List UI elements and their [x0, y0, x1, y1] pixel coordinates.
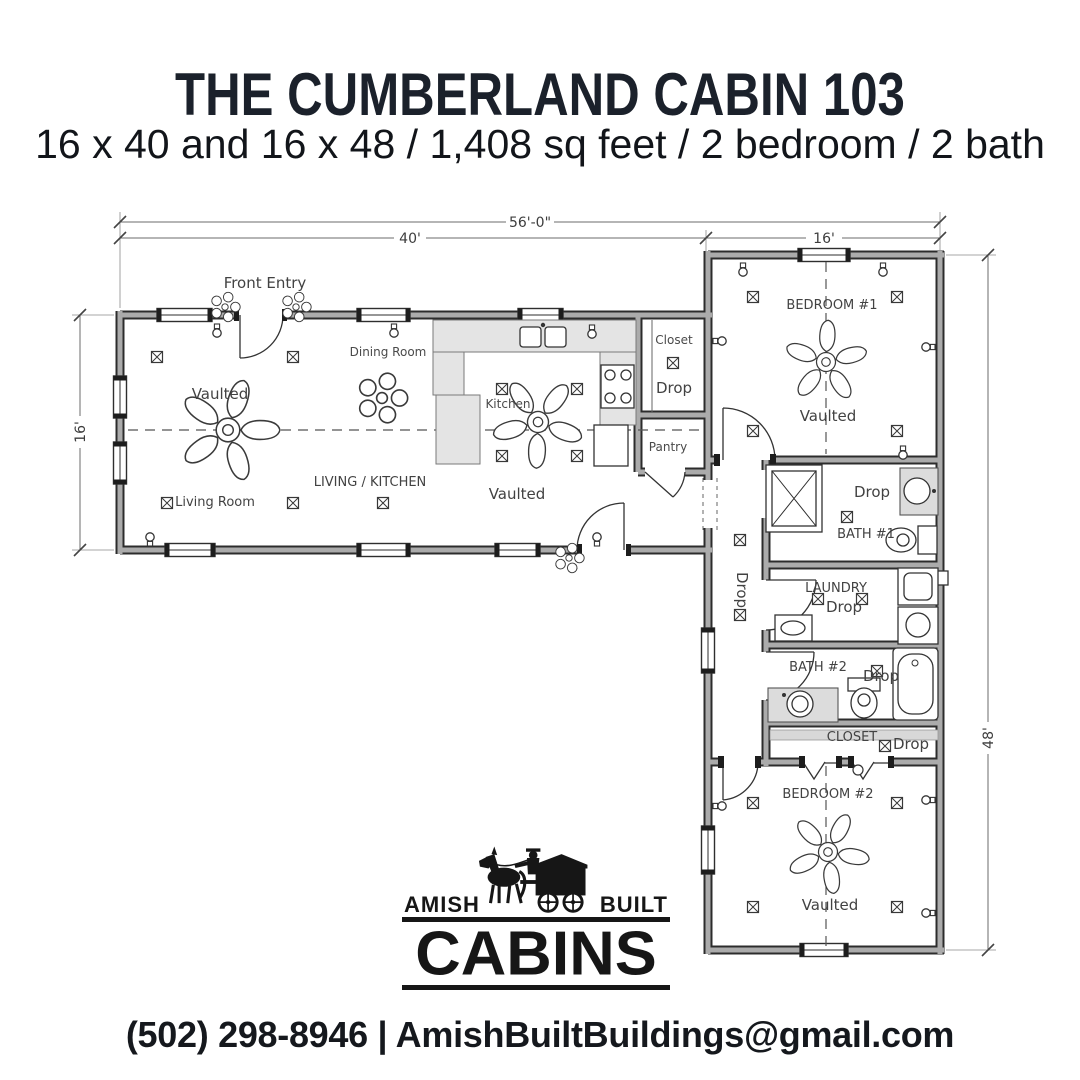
logo-word-cabins: CABINS — [402, 919, 670, 990]
dryer — [898, 607, 938, 644]
washer — [898, 568, 938, 605]
window — [157, 309, 212, 322]
label-drop-laundry: Drop — [826, 598, 862, 616]
label-laundry: LAUNDRY — [805, 581, 867, 596]
window — [800, 944, 848, 957]
label-bedroom1: BEDROOM #1 — [786, 298, 877, 313]
shower — [766, 465, 822, 532]
dishwasher — [594, 425, 628, 466]
bathtub — [893, 648, 938, 720]
window — [495, 544, 540, 557]
contact-info: (502) 298-8946 | AmishBuiltBuildings@gma… — [0, 1014, 1080, 1056]
window — [165, 544, 215, 557]
dim-right-wing-height: 48' — [981, 727, 997, 749]
bath2-vanity — [768, 688, 838, 722]
label-closet2: CLOSET — [827, 730, 878, 745]
label-drop-closet2: Drop — [893, 735, 929, 753]
window — [357, 544, 410, 557]
fan-bedroom2 — [783, 804, 876, 901]
fan-kitchen — [482, 364, 597, 482]
window — [702, 628, 715, 673]
label-pantry: Pantry — [649, 440, 687, 454]
logo-word-amish: AMISH — [404, 892, 480, 918]
logo-word-built: BUILT — [600, 892, 668, 918]
window — [357, 309, 410, 322]
label-living-room: Living Room — [175, 495, 255, 510]
label-vaulted-bedroom2: Vaulted — [802, 896, 859, 914]
company-logo: AMISH BUILT — [402, 846, 670, 994]
label-bath2: BATH #2 — [789, 660, 847, 675]
ceiling-fans — [180, 291, 877, 901]
label-front-entry: Front Entry — [224, 274, 307, 292]
closet-light — [853, 765, 863, 775]
flyer-page: THE CUMBERLAND CABIN 103 16 x 40 and 16 … — [0, 0, 1080, 1080]
dim-left-wing-depth: 16' — [73, 421, 89, 443]
label-bath1: BATH #1 — [837, 527, 895, 542]
laundry-tub — [775, 615, 812, 641]
label-vaulted-living: Vaulted — [192, 385, 249, 403]
label-living-kitchen: LIVING / KITCHEN — [314, 475, 427, 490]
bath1-vanity — [900, 468, 938, 515]
label-drop-closet1: Drop — [656, 379, 692, 397]
label-dining-room: Dining Room — [350, 345, 427, 359]
logo-rule-bottom — [402, 985, 670, 990]
label-closet1: Closet — [655, 333, 693, 347]
label-drop-hall: Drop — [733, 572, 751, 608]
label-vaulted-center: Vaulted — [489, 485, 546, 503]
light-dining — [356, 371, 407, 425]
fridge — [436, 395, 480, 464]
dim-right-wing-width: 16' — [813, 231, 835, 247]
label-vaulted-bedroom1: Vaulted — [800, 407, 857, 425]
front-entry-door — [240, 315, 283, 358]
window — [702, 826, 715, 874]
label-bedroom2: BEDROOM #2 — [782, 787, 873, 802]
label-drop-bath1: Drop — [854, 483, 890, 501]
label-drop-bath2: Drop — [863, 667, 899, 685]
rear-door — [577, 503, 624, 550]
window — [114, 376, 127, 418]
label-kitchen: Kitchen — [485, 397, 530, 411]
range — [601, 365, 634, 408]
counter-left — [433, 352, 464, 395]
window — [114, 442, 127, 484]
window — [798, 249, 850, 262]
horse-and-wagon-icon — [478, 844, 598, 920]
bedroom2-door — [723, 762, 758, 800]
pantry-door — [645, 472, 685, 497]
cased-opening — [703, 478, 717, 530]
dim-overall-width: 56'-0" — [509, 215, 551, 231]
dim-left-wing-width: 40' — [399, 231, 421, 247]
closet-bifold-left — [803, 762, 840, 779]
fan-bedroom1 — [778, 311, 877, 413]
